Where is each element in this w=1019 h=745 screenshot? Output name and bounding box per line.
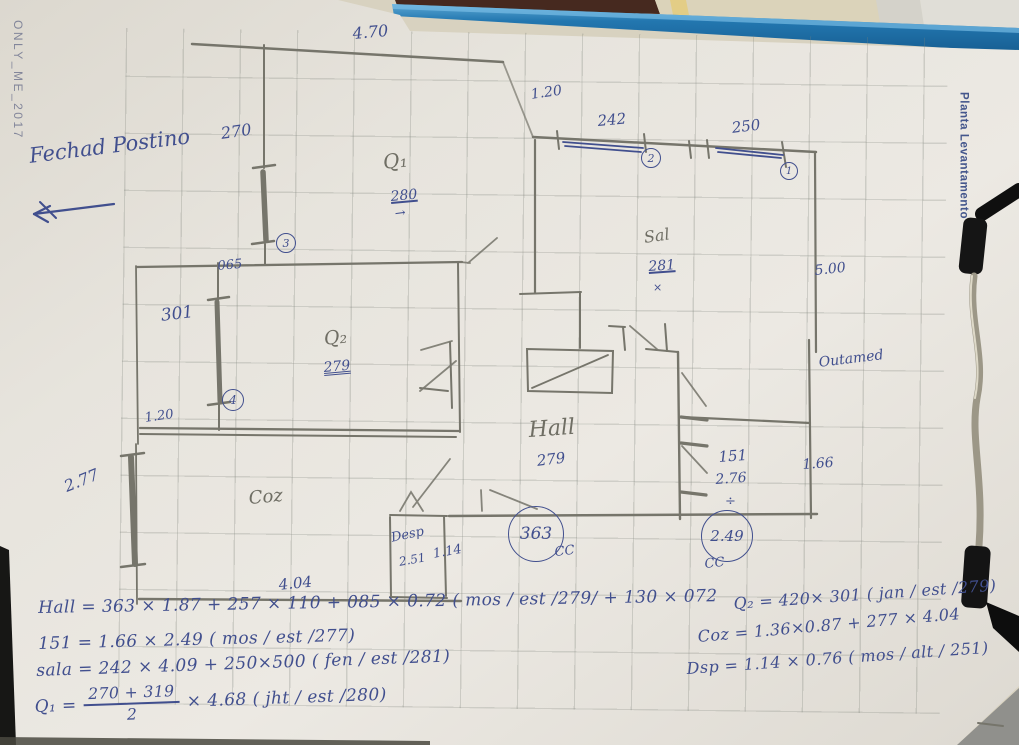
plan-label: 279	[536, 451, 566, 469]
plan-label: Sal	[643, 226, 671, 245]
door-swings	[400, 238, 707, 511]
plan-label: 281	[648, 258, 676, 274]
circled-number: 363	[508, 506, 564, 562]
ink-window-marks	[34, 142, 783, 222]
plan-title-vertical: Planta Levantamento	[957, 92, 969, 219]
plan-label: 280	[390, 188, 418, 204]
plan-label: 279	[323, 359, 351, 375]
plan-label: 301	[160, 304, 194, 325]
plan-label: →	[394, 206, 407, 220]
plan-label: 065	[217, 258, 243, 273]
plan-label: 1.66	[802, 456, 834, 472]
photo-of-floorplan-sketch: ONLY_ME_2017 Planta Levantamento Fechad …	[0, 0, 1019, 745]
plan-label: Hall	[528, 417, 576, 442]
plan-label: Coz	[248, 487, 284, 508]
circled-number: 1	[780, 162, 798, 180]
plan-label: 1.20	[144, 408, 174, 425]
plan-label: ÷	[725, 495, 736, 508]
plan-label: 4.04	[278, 575, 313, 593]
plan-label: 1.20	[530, 84, 563, 102]
circled-number: 4	[222, 389, 244, 411]
pen-grip-top	[958, 217, 988, 275]
circled-number: 2	[641, 148, 661, 168]
plan-label: 4.70	[352, 23, 389, 42]
circled-number: 2.49	[701, 510, 753, 562]
plan-label: 5.00	[814, 261, 846, 278]
plan-label: Q₂	[323, 328, 348, 349]
plan-label: 2.76	[715, 471, 747, 487]
plan-label: Q₁	[382, 149, 408, 171]
plan-label: 270	[220, 122, 252, 142]
plan-label: 242	[597, 112, 627, 129]
plan-label: ×	[653, 282, 662, 293]
plan-label: 250	[731, 118, 761, 136]
watermark-text: ONLY_ME_2017	[12, 20, 24, 140]
circled-number: 3	[276, 233, 296, 253]
plan-label: 151	[718, 448, 748, 465]
